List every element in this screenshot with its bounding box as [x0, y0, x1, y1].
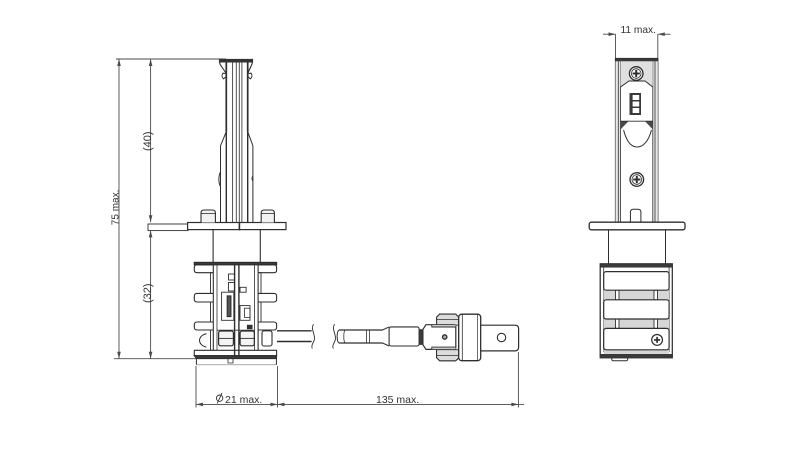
svg-text:21 max.: 21 max. — [225, 394, 262, 406]
svg-text:(32): (32) — [142, 283, 154, 303]
svg-text:75 max.: 75 max. — [111, 190, 122, 226]
svg-text:135 max.: 135 max. — [376, 394, 419, 406]
svg-text:11 max.: 11 max. — [621, 25, 656, 36]
svg-text:(40): (40) — [142, 131, 154, 151]
